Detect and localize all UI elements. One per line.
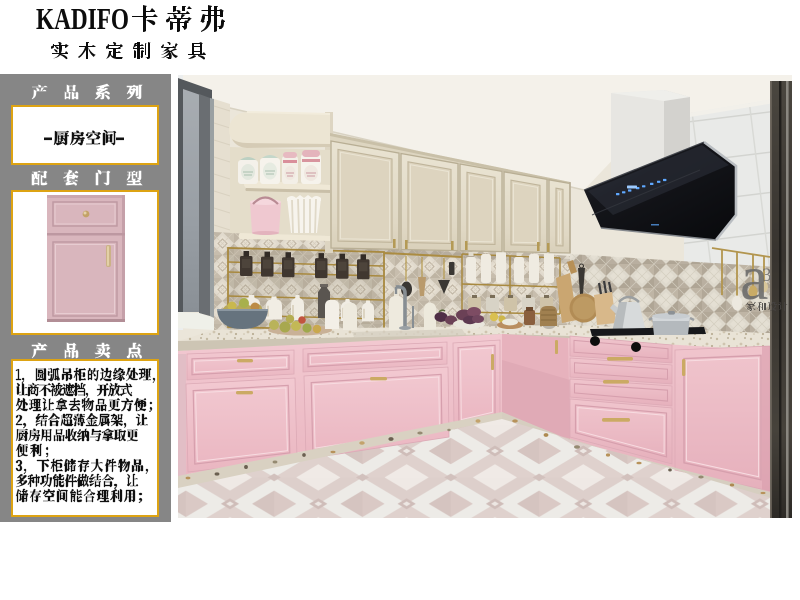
svg-text:3: 3 (762, 265, 772, 286)
